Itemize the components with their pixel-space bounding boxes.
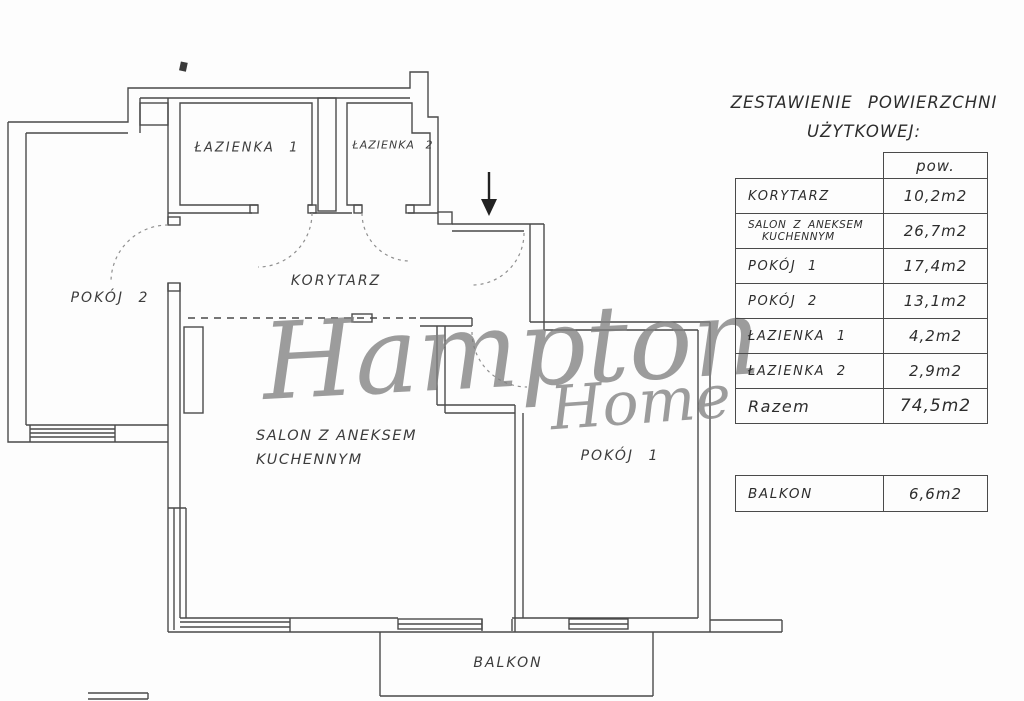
entrance-and-corridor-right-wall: [452, 224, 544, 330]
room-label-balkon: BALKON: [473, 655, 542, 671]
room-pokoj1-walls: [530, 322, 710, 632]
door-jamb: [250, 205, 258, 213]
row-label: POKÓJ 1: [736, 249, 884, 283]
door-jamb: [406, 205, 414, 213]
summary-title-line2: UŻYTKOWEJ:: [716, 117, 1012, 146]
row-label: KORYTARZ: [736, 179, 884, 213]
row-value: 10,2m2: [884, 179, 987, 213]
window-salon-corner: [180, 618, 290, 632]
scan-speck: [179, 61, 188, 71]
table-row-total: Razem 74,5m2: [736, 388, 987, 423]
row-label: SALON Z ANEKSEM KUCHENNYM: [736, 214, 884, 248]
table-row-korytarz: KORYTARZ 10,2m2: [736, 179, 987, 213]
summary-title-line1: ZESTAWIENIE POWIERZCHNI: [716, 88, 1012, 117]
room-label-lazienka-2: ŁAZIENKA 2: [353, 139, 434, 152]
wall-extension-right: [710, 620, 782, 632]
door-jamb: [354, 205, 362, 213]
row-value: 26,7m2: [884, 214, 987, 248]
door-jamb: [308, 205, 316, 213]
table-row-lazienka1: ŁAZIENKA 1 4,2m2: [736, 318, 987, 353]
room-label-salon-line2: KUCHENNYM: [256, 448, 417, 472]
table-row-pokoj2: POKÓJ 2 13,1m2: [736, 283, 987, 318]
balcony-label: BALKON: [736, 476, 884, 511]
table-row-salon: SALON Z ANEKSEM KUCHENNYM 26,7m2: [736, 213, 987, 248]
door-arc-pokoj2: [111, 225, 168, 282]
door-arc-lazienka1: [258, 213, 312, 267]
wardrobe: [184, 327, 203, 413]
exterior-wall-left: [8, 122, 168, 442]
summary-table: KORYTARZ 10,2m2 SALON Z ANEKSEM KUCHENNY…: [735, 178, 988, 424]
window-pokoj2: [30, 425, 115, 442]
wall-segment-korytarz-south: [420, 318, 472, 326]
balcony-value: 6,6m2: [884, 476, 987, 511]
summary-column-header: pow.: [883, 152, 988, 179]
row-label: POKÓJ 2: [736, 284, 884, 318]
shaft-box-top-left: [140, 103, 168, 125]
shaft-between-bathrooms: [318, 98, 336, 211]
row-label-line1: SALON Z ANEKSEM: [748, 219, 863, 232]
total-value: 74,5m2: [884, 389, 987, 423]
row-value: 2,9m2: [884, 354, 987, 388]
total-label: Razem: [736, 389, 884, 423]
door-swing-arcs: [111, 213, 527, 387]
row-label: ŁAZIENKA 2: [736, 354, 884, 388]
door-jamb: [168, 283, 180, 291]
row-label-line2: KUCHENNYM: [748, 231, 835, 244]
wall-divider-salon-pokoj1: [437, 326, 523, 632]
room-label-korytarz: KORYTARZ: [291, 273, 381, 289]
room-label-pokoj-2: POKÓJ 2: [71, 290, 150, 306]
table-row-pokoj1: POKÓJ 1 17,4m2: [736, 248, 987, 283]
room-label-salon-line1: SALON Z ANEKSEM: [256, 424, 417, 448]
row-value: 4,2m2: [884, 319, 987, 353]
row-label: ŁAZIENKA 1: [736, 319, 884, 353]
door-arc-pokoj1: [472, 332, 527, 387]
balcony-stub-left: [88, 693, 148, 699]
table-row-lazienka2: ŁAZIENKA 2 2,9m2: [736, 353, 987, 388]
entrance-arrow: [481, 172, 497, 216]
floor-plan-walls: [8, 72, 782, 699]
door-arc-lazienka2: [362, 213, 410, 261]
room-label-lazienka-1: ŁAZIENKA 1: [195, 141, 300, 156]
room-label-salon: SALON Z ANEKSEM KUCHENNYM: [256, 424, 417, 472]
entrance-jamb: [438, 212, 452, 224]
room-label-pokoj-1: POKÓJ 1: [581, 448, 660, 464]
room-lazienka-2: [347, 103, 430, 205]
window-salon-left: [168, 508, 186, 630]
door-jamb: [168, 217, 180, 225]
row-value: 13,1m2: [884, 284, 987, 318]
summary-title: ZESTAWIENIE POWIERZCHNI UŻYTKOWEJ:: [716, 88, 1012, 146]
balcony-summary-box: BALKON 6,6m2: [735, 475, 988, 512]
door-arc-entrance: [472, 233, 524, 285]
row-value: 17,4m2: [884, 249, 987, 283]
